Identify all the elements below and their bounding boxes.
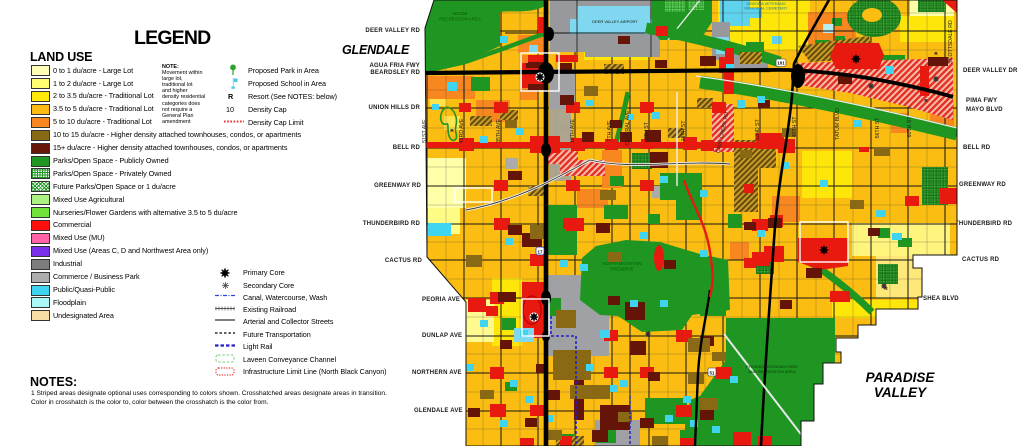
svg-text:SCOTTSDALE RD: SCOTTSDALE RD xyxy=(948,20,954,64)
svg-text:51: 51 xyxy=(710,370,715,375)
svg-text:16TH ST: 16TH ST xyxy=(681,120,687,142)
svg-text:7TH AVE: 7TH AVE xyxy=(607,120,613,141)
svg-text:AND RECREATION AREA: AND RECREATION AREA xyxy=(748,369,796,374)
svg-text:RECREATION AREA: RECREATION AREA xyxy=(439,17,480,22)
svg-text:TATUM BLVD: TATUM BLVD xyxy=(835,108,841,140)
svg-text:MEMORIAL CEMETERY: MEMORIAL CEMETERY xyxy=(744,6,788,11)
svg-text:DEER VALLEY AIRPORT: DEER VALLEY AIRPORT xyxy=(592,19,638,24)
svg-text:19TH AVE: 19TH AVE xyxy=(570,119,576,143)
svg-text:51ST AVE: 51ST AVE xyxy=(422,119,428,143)
svg-text:17: 17 xyxy=(538,249,543,254)
svg-text:35TH AVE: 35TH AVE xyxy=(496,119,502,143)
svg-text:ADOBE: ADOBE xyxy=(452,11,467,16)
svg-text:60TH ST: 60TH ST xyxy=(907,116,913,138)
svg-text:CENTRAL AVE: CENTRAL AVE xyxy=(625,110,631,146)
svg-text:7TH ST: 7TH ST xyxy=(644,121,650,140)
svg-text:43RD AVE: 43RD AVE xyxy=(459,118,465,143)
svg-text:40TH ST: 40TH ST xyxy=(792,116,798,138)
svg-text:PRESERVE: PRESERVE xyxy=(610,267,633,272)
svg-text:NORTH MOUNTAIN: NORTH MOUNTAIN xyxy=(603,261,642,266)
svg-text:56TH ST: 56TH ST xyxy=(875,117,881,139)
svg-text:32ND ST: 32ND ST xyxy=(755,119,761,141)
svg-text:101: 101 xyxy=(777,61,785,66)
